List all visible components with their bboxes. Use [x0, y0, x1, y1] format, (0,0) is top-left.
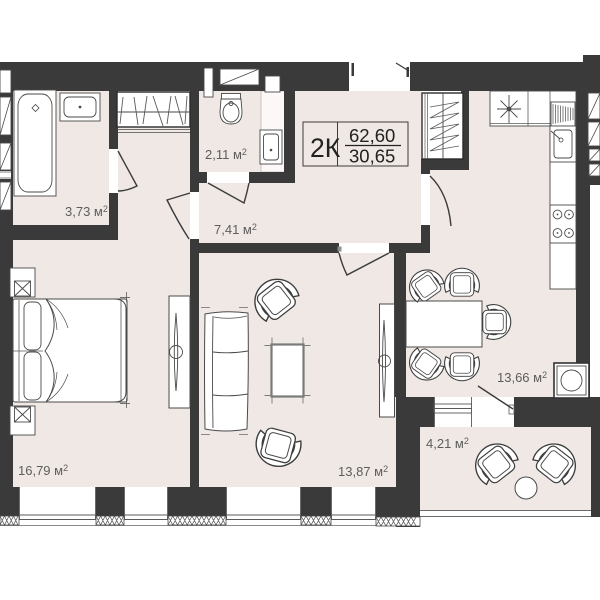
- svg-text:16,79 м2: 16,79 м2: [18, 463, 68, 478]
- svg-text:4,21 м2: 4,21 м2: [426, 436, 469, 451]
- svg-text:62,60: 62,60: [349, 125, 395, 146]
- svg-text:3,73 м2: 3,73 м2: [65, 204, 108, 219]
- svg-text:7,41 м2: 7,41 м2: [214, 222, 257, 237]
- svg-text:13,66 м2: 13,66 м2: [497, 370, 547, 385]
- svg-text:13,87 м2: 13,87 м2: [338, 464, 388, 479]
- svg-text:30,65: 30,65: [349, 146, 395, 167]
- svg-text:2К: 2К: [310, 133, 341, 163]
- svg-text:2,11 м2: 2,11 м2: [205, 147, 247, 162]
